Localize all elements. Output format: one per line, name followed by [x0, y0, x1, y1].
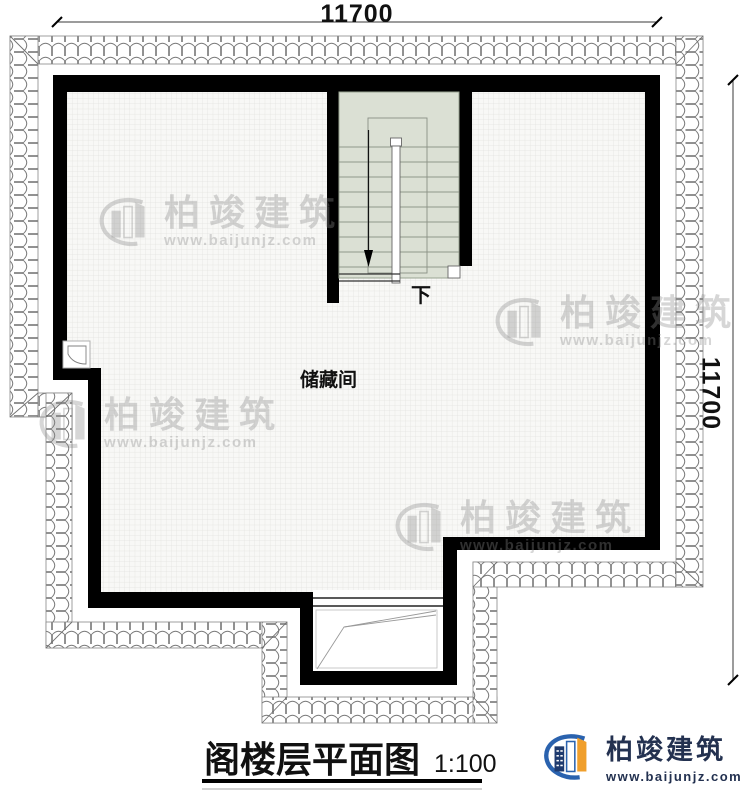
floor-plan-page: 柏竣建筑 www.baijunjz.com 柏竣建筑 www.baijunjz.…	[0, 0, 750, 800]
drawing-scale: 1:100	[434, 750, 497, 779]
drawing-title: 阁楼层平面图	[204, 731, 420, 783]
floor-plan-drawing	[0, 0, 750, 800]
stair-landing-notch	[448, 266, 460, 278]
dimension-right-value: 11700	[696, 339, 725, 449]
company-url: www.baijunjz.com	[606, 769, 742, 784]
dimension-right	[728, 75, 738, 685]
company-logo-icon	[541, 728, 599, 784]
company-name: 柏竣建筑	[606, 728, 742, 767]
stair-down-label: 下	[411, 279, 431, 308]
drawing-title-block: 阁楼层平面图 1:100	[204, 731, 497, 783]
corner-niche	[63, 341, 90, 368]
room-label-storage: 储藏间	[300, 365, 357, 392]
company-logo: 柏竣建筑 www.baijunjz.com	[541, 728, 742, 784]
title-underline	[202, 779, 482, 783]
stair-handrail	[391, 138, 402, 283]
dimension-top-value: 11700	[297, 0, 417, 29]
staircase	[339, 92, 460, 283]
title-underline-thin	[202, 788, 482, 790]
entry-bay	[313, 590, 443, 669]
